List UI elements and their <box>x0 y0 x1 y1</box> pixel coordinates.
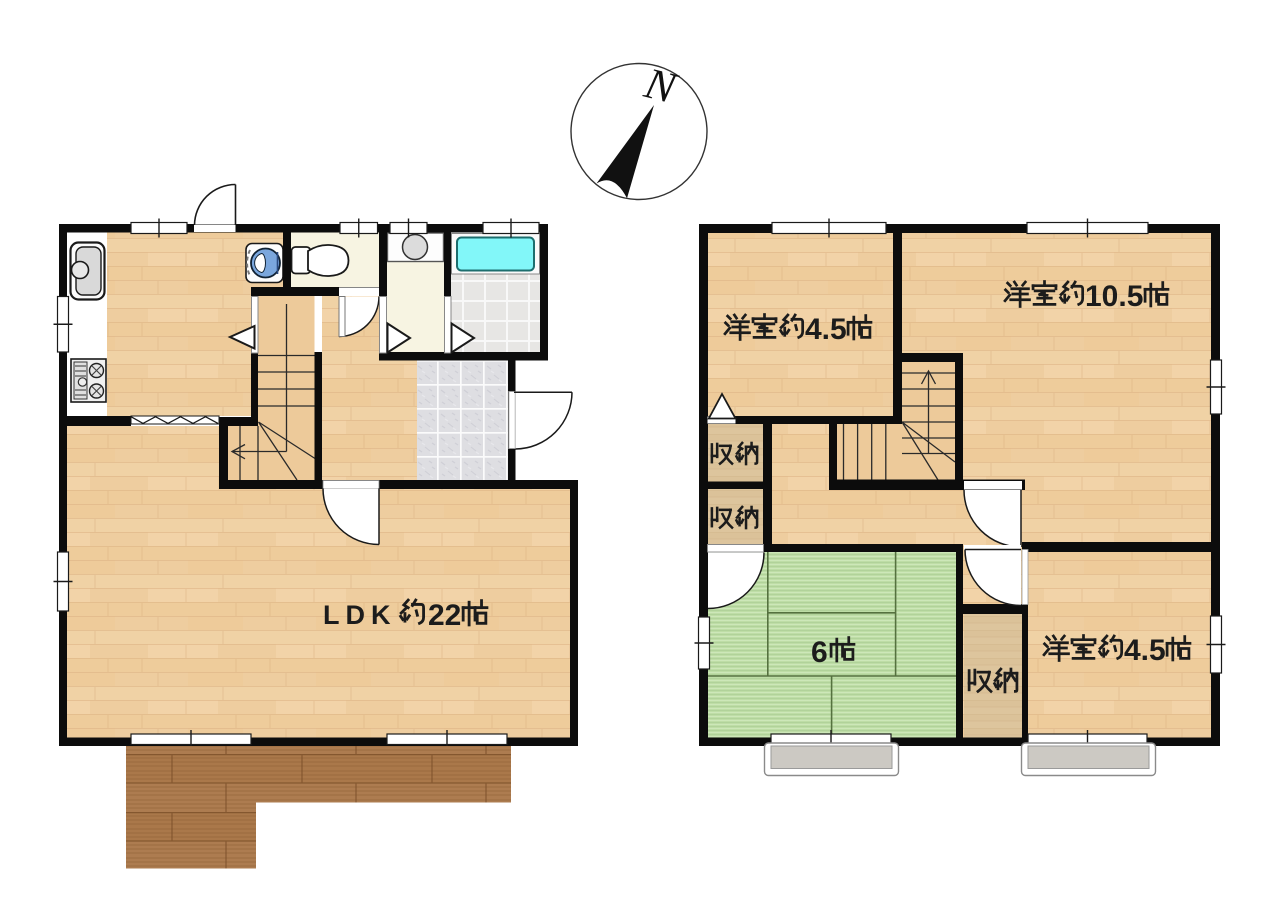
svg-text:4.5: 4.5 <box>1124 634 1166 667</box>
svg-text:10.5: 10.5 <box>1085 280 1143 313</box>
svg-text:4.5: 4.5 <box>805 313 847 346</box>
svg-text:22: 22 <box>428 599 461 632</box>
svg-text:LDK: LDK <box>323 600 397 630</box>
svg-text:6: 6 <box>811 636 828 669</box>
